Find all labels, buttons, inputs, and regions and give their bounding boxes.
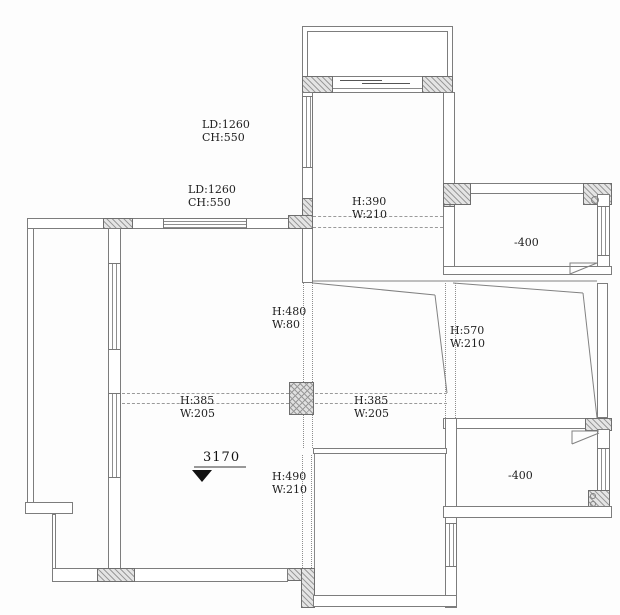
window-label-left: LD:1260 CH:550 xyxy=(188,183,236,209)
beam-dotted-line xyxy=(312,283,313,448)
sliding-window xyxy=(108,263,121,350)
wall-segment xyxy=(52,514,56,570)
label-line: W:210 xyxy=(352,208,387,221)
upper-right-room-bottom-wall xyxy=(443,266,612,275)
label-line: W:205 xyxy=(180,407,215,420)
beam-label-top: H:390 W:210 xyxy=(352,195,387,221)
level-label-lower-room: -400 xyxy=(508,469,533,482)
label-line: H:385 xyxy=(354,394,389,407)
window xyxy=(302,96,313,168)
center-right-wall xyxy=(597,283,608,418)
lower-right-room-bottom-wall xyxy=(443,506,612,518)
top-balcony-inner-line xyxy=(307,31,448,77)
sliding-window xyxy=(108,393,121,478)
window-label-top: LD:1260 CH:550 xyxy=(202,118,250,144)
label-line: H:490 xyxy=(272,470,307,483)
wall-hatch xyxy=(97,568,135,582)
window xyxy=(445,523,457,567)
label-line: H:385 xyxy=(180,394,215,407)
window xyxy=(597,206,610,256)
label-line: LD:1260 xyxy=(188,183,236,196)
sill-detail xyxy=(572,431,599,444)
bottom-room-bottom-wall xyxy=(313,595,457,607)
left-room-bottom-wall xyxy=(52,568,288,582)
label-line: W:210 xyxy=(272,483,307,496)
beam-label-center-vertical: H:480 W:80 xyxy=(272,305,306,331)
label-line: LD:1260 xyxy=(202,118,250,131)
ceiling-height-label: 3170 xyxy=(203,451,240,464)
left-balcony-outer-wall xyxy=(27,228,34,514)
slanted-ceiling-line xyxy=(583,293,597,418)
sill-line xyxy=(333,88,422,89)
label-line: CH:550 xyxy=(202,131,250,144)
column xyxy=(289,382,314,415)
beam-dotted-line xyxy=(311,455,312,568)
beam-label-left-horizontal: H:385 W:205 xyxy=(180,394,215,420)
wall-hatch xyxy=(422,76,453,93)
label-line: H:570 xyxy=(450,324,485,337)
label-line: W:210 xyxy=(450,337,485,350)
wall-hatch xyxy=(443,183,471,205)
window xyxy=(597,448,610,493)
beam-label-bottom-vertical: H:490 W:210 xyxy=(272,470,307,496)
sill-detail xyxy=(572,433,599,444)
label-line: W:205 xyxy=(354,407,389,420)
beam-dashed-line xyxy=(313,227,443,228)
top-room-right-wall xyxy=(443,92,455,268)
bottom-room-top-wall xyxy=(313,448,447,454)
top-balcony-outline xyxy=(302,26,453,77)
window xyxy=(163,218,247,229)
level-marker-triangle xyxy=(192,470,212,482)
slanted-ceiling-line xyxy=(313,283,435,295)
floor-plan-canvas: LD:1260 CH:550 LD:1260 CH:550 H:390 W:21… xyxy=(0,0,620,615)
sliding-door-line xyxy=(340,80,382,81)
center-left-wall xyxy=(302,228,313,283)
bottom-room-left-wall-line xyxy=(314,454,315,570)
sliding-door-line xyxy=(362,83,410,84)
label-line: H:480 xyxy=(272,305,306,318)
wall-hatch xyxy=(302,76,333,93)
level-label-upper-room: -400 xyxy=(514,236,539,249)
left-balcony-end-bar xyxy=(25,502,73,514)
wall-hatch xyxy=(288,215,313,229)
beam-label-mid-horizontal: H:385 W:205 xyxy=(354,394,389,420)
label-line: W:80 xyxy=(272,318,306,331)
label-line: CH:550 xyxy=(188,196,236,209)
slanted-ceiling-line xyxy=(453,283,583,293)
beam-label-right-vertical: H:570 W:210 xyxy=(450,324,485,350)
label-line: H:390 xyxy=(352,195,387,208)
